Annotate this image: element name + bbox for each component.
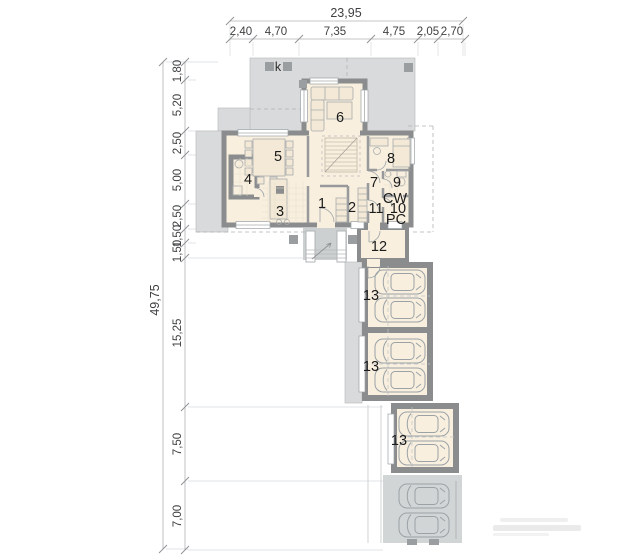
left-dimension-line: 49,75 1,80 5,20 2,50 5,00 2,50 1,50 1,50… [148, 58, 189, 554]
dim-label-left-2: 2,50 [172, 132, 184, 154]
floor-plan-canvas: 23,95 2,40 4,70 7,35 4,75 2,05 2,70 49,7… [0, 0, 638, 556]
garage-label-a: 13 [363, 288, 379, 304]
terrace-label-k: k [275, 60, 282, 74]
label-pc: PC [386, 212, 406, 228]
dim-label-left-6: 1,50 [172, 240, 184, 262]
top-dimension-line: 23,95 2,40 4,70 7,35 4,75 2,05 2,70 [226, 6, 469, 43]
garage-label-c: 13 [391, 433, 407, 449]
room-label-1: 1 [318, 196, 326, 212]
garage-label-b: 13 [363, 359, 379, 375]
watermark [493, 518, 581, 536]
walkway [368, 405, 381, 543]
dim-label-top-5: 2,70 [441, 26, 463, 38]
room-label-6: 6 [336, 110, 344, 126]
floor-plan-page: 23,95 2,40 4,70 7,35 4,75 2,05 2,70 49,7… [0, 0, 638, 556]
room-label-5: 5 [274, 149, 282, 165]
dim-label-top-1: 4,70 [265, 26, 287, 38]
dim-label-top-total: 23,95 [330, 6, 361, 20]
room-label-2: 2 [348, 200, 356, 216]
parking-area [383, 475, 462, 543]
room-label-12: 12 [371, 239, 387, 255]
room-label-4: 4 [244, 172, 252, 188]
dim-label-left-9: 7,00 [172, 505, 184, 527]
room-label-7: 7 [370, 175, 378, 191]
dim-label-top-2: 7,35 [324, 26, 346, 38]
dim-label-left-1: 5,20 [172, 94, 184, 116]
dim-label-left-8: 7,50 [172, 433, 184, 455]
dim-label-left-4: 2,50 [172, 205, 184, 227]
dim-label-left-0: 1,80 [172, 60, 184, 82]
garage-block-a [362, 259, 430, 398]
room-label-9: 9 [393, 175, 401, 191]
dim-label-left-3: 5,00 [172, 169, 184, 191]
dim-label-top-4: 2,05 [417, 26, 439, 38]
dim-label-left-total: 49,75 [148, 284, 162, 315]
dim-label-top-0: 2,40 [230, 26, 252, 38]
room-label-8: 8 [387, 151, 395, 167]
room-label-11: 11 [368, 201, 383, 217]
dim-label-top-3: 4,75 [383, 26, 405, 38]
dim-label-left-7: 15,25 [172, 319, 184, 348]
room-label-3: 3 [276, 204, 284, 220]
